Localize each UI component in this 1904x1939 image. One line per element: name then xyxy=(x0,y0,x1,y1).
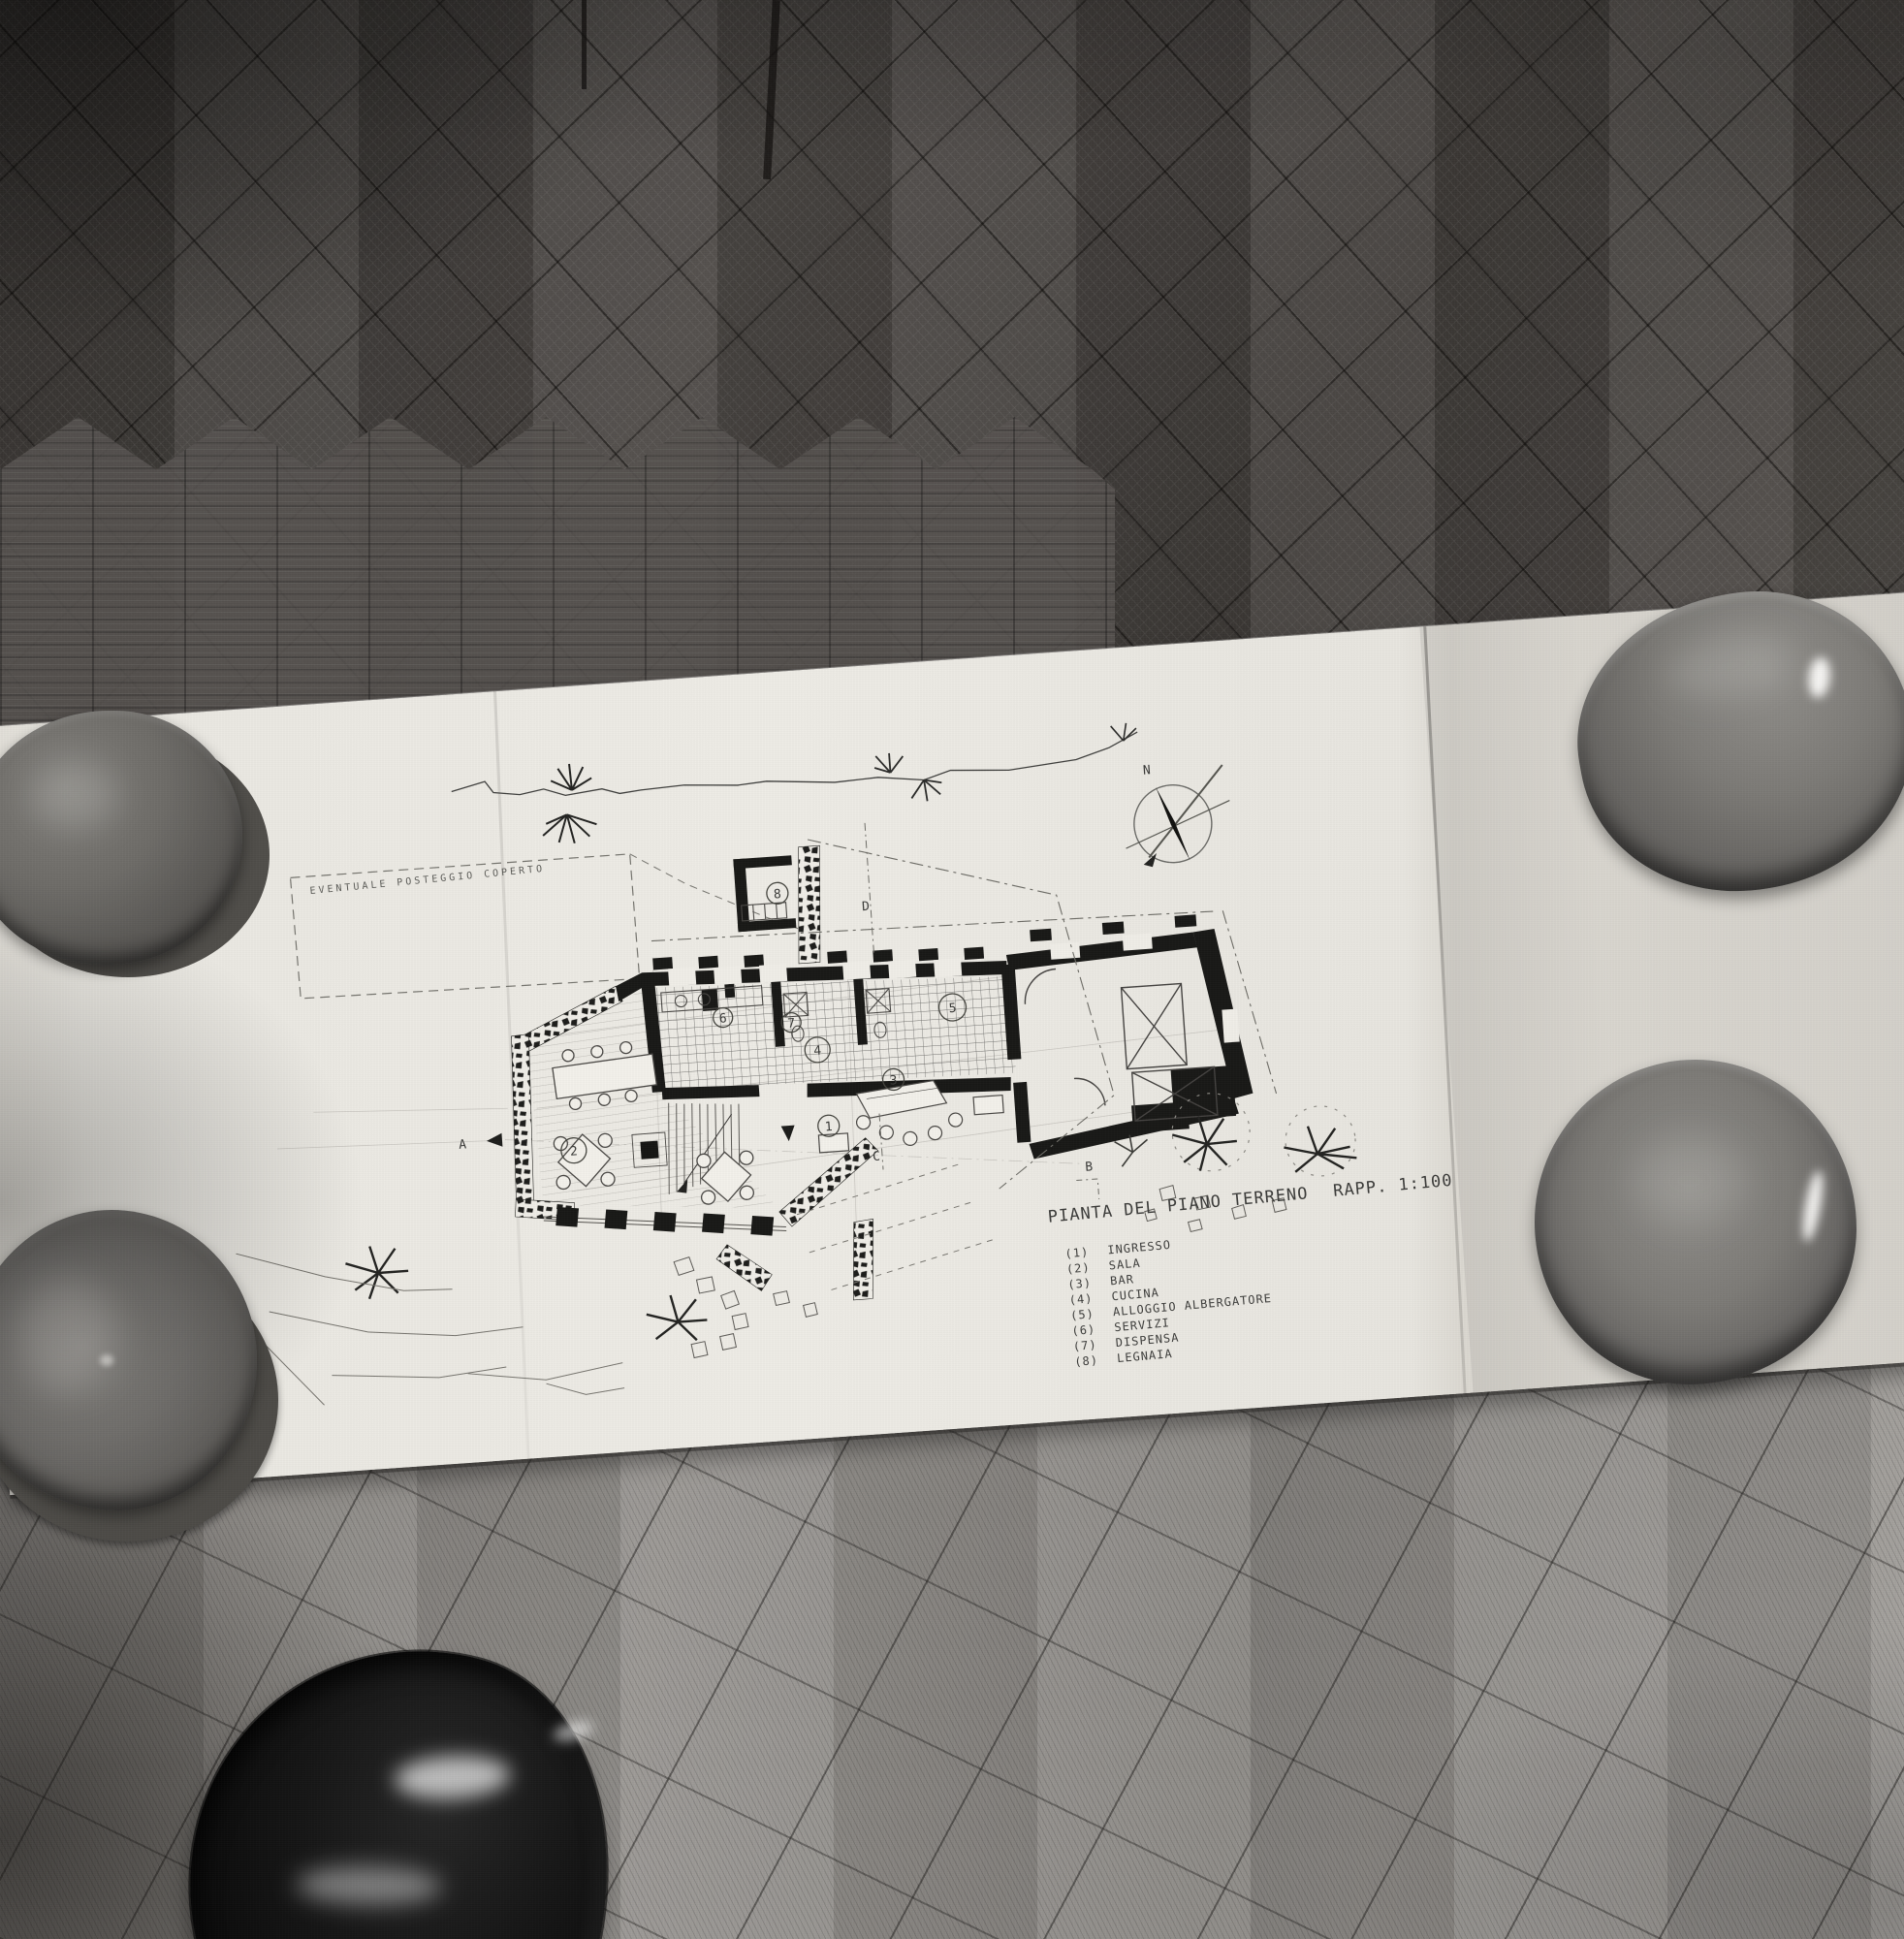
section-marker-d: D xyxy=(862,900,871,915)
bowl-highlight xyxy=(1807,655,1832,698)
bowl-highlight xyxy=(1799,1169,1827,1243)
shoe-highlight xyxy=(394,1754,512,1802)
photo-scene: N xyxy=(0,0,1904,1939)
bowl-highlight xyxy=(1632,1137,1748,1224)
legend: (1)INGRESSO (2)SALA (3)BAR (4)CUCINA (5)… xyxy=(1064,1228,1277,1370)
room-label-1: 1 xyxy=(824,1120,833,1135)
plank-gap-line xyxy=(763,0,780,179)
room-label-2: 2 xyxy=(570,1144,579,1160)
terrain-sketch-line xyxy=(450,722,1142,851)
compass-north-label: N xyxy=(1142,763,1151,779)
bowl-highlight xyxy=(1661,626,1794,706)
bowl-highlight xyxy=(31,761,118,829)
bowl-highlight xyxy=(100,1354,113,1366)
plank-gap-line xyxy=(582,0,587,89)
room-label-8: 8 xyxy=(774,887,782,903)
section-marker-b: B xyxy=(1085,1160,1094,1175)
shoe-highlight xyxy=(297,1865,443,1907)
room-label-5: 5 xyxy=(948,1001,957,1017)
room-label-7: 7 xyxy=(787,1016,796,1032)
bowl-highlight xyxy=(18,1276,115,1392)
room-label-6: 6 xyxy=(718,1011,727,1027)
room-label-3: 3 xyxy=(889,1073,898,1089)
room-label-4: 4 xyxy=(813,1044,822,1060)
compass-rose: N xyxy=(1121,758,1234,869)
paperweight-bowl-right xyxy=(1535,1060,1856,1384)
section-marker-a: A xyxy=(459,1137,467,1153)
section-marker-c: C xyxy=(873,1150,881,1165)
